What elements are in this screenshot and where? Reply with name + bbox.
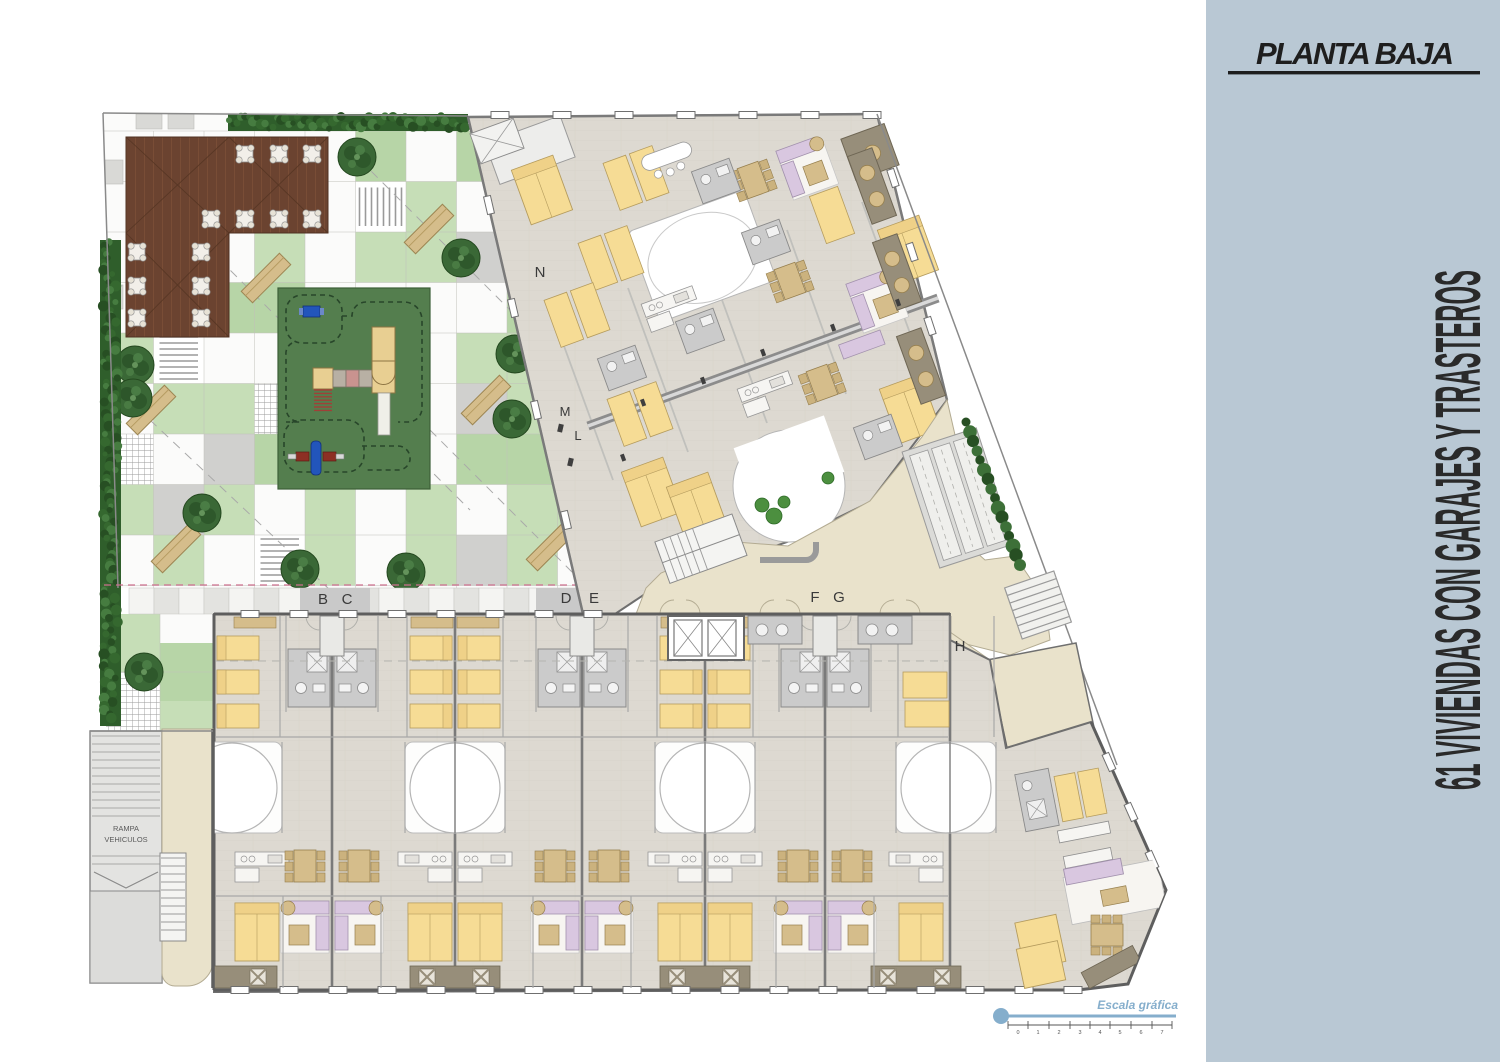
svg-text:VEHICULOS: VEHICULOS: [104, 835, 147, 844]
svg-text:G: G: [833, 589, 845, 606]
svg-text:Escala gráfica: Escala gráfica: [1097, 998, 1178, 1012]
svg-text:61 VIVIENDAS CON GARAJES Y TRA: 61 VIVIENDAS CON GARAJES Y TRASTEROS: [1422, 270, 1494, 790]
svg-text:RAMPA: RAMPA: [113, 824, 139, 833]
svg-text:L: L: [574, 428, 581, 443]
svg-text:B: B: [318, 591, 328, 608]
svg-text:D: D: [561, 590, 572, 607]
svg-text:N: N: [535, 264, 546, 281]
svg-text:3: 3: [1078, 1030, 1081, 1036]
svg-text:F: F: [810, 589, 819, 606]
svg-text:H: H: [955, 638, 966, 655]
svg-text:E: E: [589, 590, 599, 607]
svg-text:4: 4: [1098, 1030, 1101, 1036]
svg-text:2: 2: [1057, 1030, 1060, 1036]
svg-text:C: C: [342, 591, 353, 608]
svg-text:6: 6: [1139, 1030, 1142, 1036]
svg-text:0: 0: [1016, 1030, 1019, 1036]
svg-text:PLANTA BAJA: PLANTA BAJA: [1256, 36, 1454, 71]
svg-text:7: 7: [1160, 1030, 1163, 1036]
svg-text:M: M: [560, 404, 571, 419]
svg-text:5: 5: [1118, 1030, 1121, 1036]
svg-text:1: 1: [1036, 1030, 1039, 1036]
